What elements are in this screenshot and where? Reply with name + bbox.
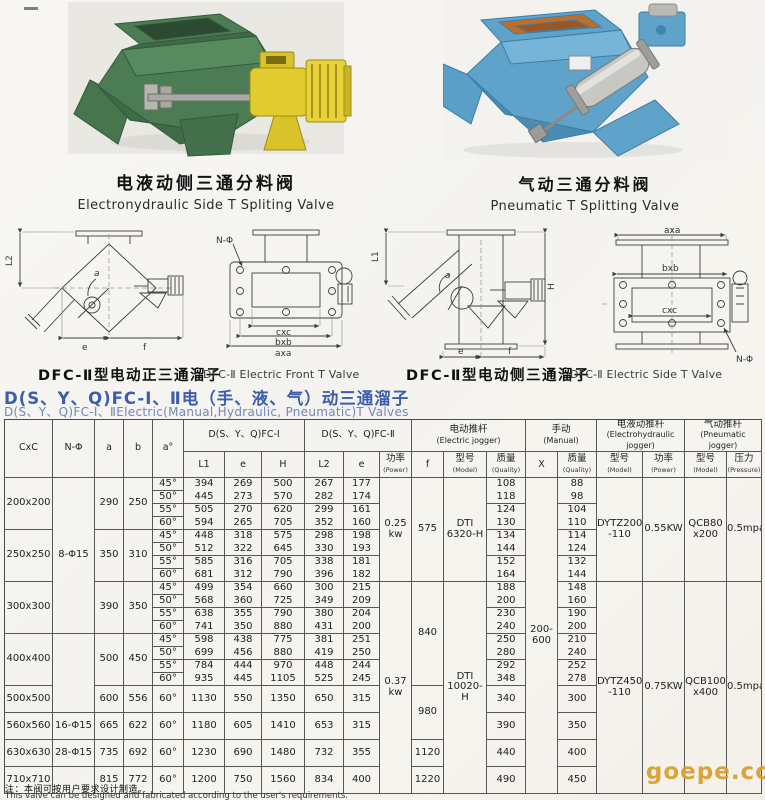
value-cell: 400 [558, 740, 597, 767]
value-cell: 665 [95, 713, 124, 740]
value-cell: 98 [558, 491, 597, 504]
value-cell: 598 [184, 634, 225, 647]
value-cell: 250 [124, 478, 153, 530]
value-cell: 400 [344, 767, 380, 794]
dim-label-f1: f [143, 343, 147, 353]
value-cell: 568 [184, 595, 225, 608]
group-manual: 手动(Manual) [526, 420, 597, 452]
value-cell: 144 [558, 569, 597, 582]
product2-caption: 气动三通分料阀 Pneumatic T Splitting Valve [443, 171, 727, 214]
value-cell: 381 [305, 634, 344, 647]
footnote-en: This valve can be designed and fabricate… [5, 791, 348, 800]
col-l1: L1 [184, 452, 225, 478]
product2-title-en: Pneumatic T Splitting Valve [443, 199, 727, 214]
product1-title-zh: 电液动侧三通分料阀 [60, 169, 352, 194]
f-cell: 1220 [412, 767, 444, 794]
dim-label-h: H [547, 283, 557, 290]
value-cell: 60° [153, 740, 184, 767]
value-cell: 690 [225, 740, 262, 767]
value-cell: 360 [225, 595, 262, 608]
value-cell: 124 [558, 543, 597, 556]
drawing2-caption-zh: DFC-Ⅱ型电动侧三通溜子 [406, 364, 590, 385]
col-a: a [95, 420, 124, 478]
value-cell: 741 [184, 621, 225, 634]
value-cell: 775 [262, 634, 305, 647]
power-cell: 0.25kw [380, 478, 412, 582]
value-cell: 438 [225, 634, 262, 647]
value-cell: 298 [305, 530, 344, 543]
dim-label-axa2: axa [664, 226, 680, 236]
value-cell: 273 [225, 491, 262, 504]
col-angle: a° [153, 420, 184, 478]
value-cell: 735 [95, 740, 124, 767]
value-cell: 300 [305, 582, 344, 595]
dim-label-axa1: axa [275, 349, 291, 359]
size-cell: 560x560 [5, 713, 53, 740]
value-cell: 880 [262, 621, 305, 634]
value-cell: 124 [487, 504, 526, 517]
value-cell: 88 [558, 478, 597, 491]
value-cell: 450 [124, 634, 153, 686]
value-cell: 445 [184, 491, 225, 504]
value-cell: 322 [225, 543, 262, 556]
value-cell: 456 [225, 647, 262, 660]
spec-table-body: 200x2008-Φ1529025045°3942695002671770.25… [5, 478, 762, 794]
f-cell: 980 [412, 686, 444, 740]
col-cxc: CxC [5, 420, 53, 478]
value-cell: 1350 [262, 686, 305, 713]
value-cell: 45° [153, 530, 184, 543]
value-cell: 350 [558, 713, 597, 740]
col-b: b [124, 420, 153, 478]
value-cell: 60° [153, 517, 184, 530]
value-cell: 114 [558, 530, 597, 543]
value-cell: 200 [487, 595, 526, 608]
value-cell: 650 [305, 686, 344, 713]
value-cell: 705 [262, 517, 305, 530]
value-cell: 300 [558, 686, 597, 713]
value-cell: 280 [487, 647, 526, 660]
value-cell: 270 [225, 504, 262, 517]
size-cell: 200x200 [5, 478, 53, 530]
value-cell: 790 [262, 608, 305, 621]
value-cell: 200 [344, 621, 380, 634]
value-cell: 316 [225, 556, 262, 569]
value-cell: 55° [153, 608, 184, 621]
value-cell: 834 [305, 767, 344, 794]
col-electric-model: 型号(Model) [444, 452, 487, 478]
col-power: 功率(Power) [380, 452, 412, 478]
eh-model-cell: DYTZ200-110 [597, 478, 643, 582]
value-cell: 448 [184, 530, 225, 543]
value-cell: 50° [153, 647, 184, 660]
value-cell: 251 [344, 634, 380, 647]
value-cell: 278 [558, 673, 597, 686]
value-cell: 160 [558, 595, 597, 608]
value-cell: 594 [184, 517, 225, 530]
product1-caption: 电液动侧三通分料阀 Electronydraulic Side T Spliti… [60, 169, 352, 213]
value-cell: 312 [225, 569, 262, 582]
value-cell: 505 [184, 504, 225, 517]
value-cell: 396 [305, 569, 344, 582]
value-cell: 240 [487, 621, 526, 634]
value-cell: 174 [344, 491, 380, 504]
size-cell: 300x300 [5, 582, 53, 634]
value-cell: 585 [184, 556, 225, 569]
value-cell: 525 [305, 673, 344, 686]
value-cell: 1410 [262, 713, 305, 740]
value-cell: 152 [487, 556, 526, 569]
photo-pneumatic-valve [443, 2, 727, 164]
value-cell: 104 [558, 504, 597, 517]
spec-table: CxCN-Φaba°D(S、Y、Q)FC-ⅠD(S、Y、Q)FC-Ⅱ电动推杆(E… [4, 419, 762, 794]
value-cell: 340 [487, 686, 526, 713]
drawing2-caption-en: DFC-Ⅱ Electric Side T Valve [570, 368, 722, 381]
value-cell: 209 [344, 595, 380, 608]
value-cell: 299 [305, 504, 344, 517]
size-cell: 630x630 [5, 740, 53, 767]
group-electric-jogger: 电动推杆(Electric jogger) [412, 420, 526, 452]
value-cell: 970 [262, 660, 305, 673]
value-cell: 705 [262, 556, 305, 569]
value-cell: 784 [184, 660, 225, 673]
drawing1-caption-en: DFC-Ⅱ Electric Front T Valve [203, 368, 360, 381]
value-cell: 60° [153, 767, 184, 794]
value-cell: 348 [487, 673, 526, 686]
watermark: goepe.co [646, 759, 765, 785]
product1-title-en: Electronydraulic Side T Spliting Valve [60, 198, 352, 213]
value-cell: 500 [262, 478, 305, 491]
value-cell: 252 [558, 660, 597, 673]
value-cell: 198 [344, 530, 380, 543]
value-cell: 1230 [184, 740, 225, 767]
f-cell: 1120 [412, 740, 444, 767]
value-cell: 190 [558, 608, 597, 621]
product-figure-electrohydraulic: 电液动侧三通分料阀 Electronydraulic Side T Spliti… [60, 2, 352, 213]
col-manual-quality: 质量(Quality) [558, 452, 597, 478]
dim-label-cxc2: cxc [662, 306, 677, 316]
value-cell: 250 [487, 634, 526, 647]
value-cell: 45° [153, 634, 184, 647]
dim-label-f2: f [508, 347, 512, 357]
value-cell: 204 [344, 608, 380, 621]
technical-drawings: L2 a e f N-Φ cxc bxb axa [0, 226, 765, 364]
drawing-side-valve [386, 230, 545, 357]
value-cell: 215 [344, 582, 380, 595]
photo-electrohydraulic-valve [60, 2, 352, 162]
dim-label-l2: L2 [5, 255, 15, 266]
value-cell: 55° [153, 504, 184, 517]
product2-title-zh: 气动三通分料阀 [443, 171, 727, 195]
value-cell: 354 [225, 582, 262, 595]
value-cell: 188 [487, 582, 526, 595]
value-cell: 1480 [262, 740, 305, 767]
value-cell: 318 [225, 530, 262, 543]
value-cell: 725 [262, 595, 305, 608]
product-figure-pneumatic: 气动三通分料阀 Pneumatic T Splitting Valve [443, 2, 727, 214]
eh-power-cell: 0.55KW [643, 478, 685, 582]
value-cell: 380 [305, 608, 344, 621]
scan-artifact [24, 7, 38, 10]
value-cell: 1105 [262, 673, 305, 686]
drawing1-caption-zh: DFC-Ⅱ型电动正三通溜子 [38, 364, 222, 385]
value-cell: 245 [344, 673, 380, 686]
value-cell: 134 [487, 530, 526, 543]
value-cell: 45° [153, 582, 184, 595]
value-cell: 338 [305, 556, 344, 569]
value-cell: 699 [184, 647, 225, 660]
value-cell: 444 [225, 660, 262, 673]
size-cell: 400x400 [5, 634, 53, 686]
value-cell: 182 [344, 569, 380, 582]
value-cell: 622 [124, 713, 153, 740]
value-cell: 350 [225, 621, 262, 634]
col-l2: L2 [305, 452, 344, 478]
value-cell: 55° [153, 556, 184, 569]
value-cell: 160 [344, 517, 380, 530]
value-cell: 653 [305, 713, 344, 740]
value-cell: 390 [487, 713, 526, 740]
value-cell: 419 [305, 647, 344, 660]
eh-model-cell: DYTZ450-110 [597, 582, 643, 794]
value-cell: 50° [153, 595, 184, 608]
value-cell: 1560 [262, 767, 305, 794]
value-cell: 431 [305, 621, 344, 634]
dim-label-cxc1: cxc [276, 328, 291, 338]
value-cell: 500 [95, 634, 124, 686]
col-f: f [412, 452, 444, 478]
value-cell: 660 [262, 582, 305, 595]
value-cell: 681 [184, 569, 225, 582]
value-cell: 600 [95, 686, 124, 713]
value-cell: 638 [184, 608, 225, 621]
power-cell: 0.37kw [380, 582, 412, 794]
value-cell: 310 [124, 530, 153, 582]
value-cell: 110 [558, 517, 597, 530]
value-cell: 570 [262, 491, 305, 504]
value-cell: 1180 [184, 713, 225, 740]
value-cell: 60° [153, 713, 184, 740]
value-cell: 164 [487, 569, 526, 582]
col-eh-power: 功率(Power) [643, 452, 685, 478]
dim-label-nphi2: N-Φ [736, 355, 753, 364]
value-cell: 315 [344, 713, 380, 740]
value-cell: 448 [305, 660, 344, 673]
value-cell: 645 [262, 543, 305, 556]
value-cell: 60° [153, 621, 184, 634]
value-cell: 267 [305, 478, 344, 491]
nphi-cell: 16-Φ15 [53, 713, 95, 740]
value-cell: 244 [344, 660, 380, 673]
value-cell: 692 [124, 740, 153, 767]
electric-model-cell: DTⅠ6320-H [444, 478, 487, 582]
value-cell: 394 [184, 478, 225, 491]
col-e2: e [344, 452, 380, 478]
value-cell: 350 [95, 530, 124, 582]
value-cell: 750 [225, 767, 262, 794]
value-cell: 550 [225, 686, 262, 713]
value-cell: 790 [262, 569, 305, 582]
drawing-side-valve-face [602, 228, 748, 354]
value-cell: 50° [153, 491, 184, 504]
value-cell: 193 [344, 543, 380, 556]
value-cell: 390 [95, 582, 124, 634]
value-cell: 60° [153, 686, 184, 713]
col-e1: e [225, 452, 262, 478]
pneu-model-cell: QCB80x200 [685, 478, 727, 582]
value-cell: 575 [262, 530, 305, 543]
value-cell: 200 [558, 621, 597, 634]
value-cell: 50° [153, 543, 184, 556]
dim-label-e2: e [458, 347, 464, 357]
value-cell: 1130 [184, 686, 225, 713]
value-cell: 352 [305, 517, 344, 530]
value-cell: 330 [305, 543, 344, 556]
value-cell: 130 [487, 517, 526, 530]
value-cell: 269 [225, 478, 262, 491]
group-pneumatic-jogger: 气动推杆(Pneumatic jogger) [685, 420, 762, 452]
group-fc1: D(S、Y、Q)FC-Ⅰ [184, 420, 305, 452]
dim-label-a1: a [94, 269, 100, 279]
nphi-cell [53, 634, 95, 713]
value-cell: 45° [153, 478, 184, 491]
value-cell: 132 [558, 556, 597, 569]
value-cell: 620 [262, 504, 305, 517]
spec-table-head: CxCN-Φaba°D(S、Y、Q)FC-ⅠD(S、Y、Q)FC-Ⅱ电动推杆(E… [5, 420, 762, 478]
value-cell: 490 [487, 767, 526, 794]
value-cell: 512 [184, 543, 225, 556]
catalog-page: 电液动侧三通分料阀 Electronydraulic Side T Spliti… [0, 0, 765, 800]
value-cell: 499 [184, 582, 225, 595]
value-cell: 605 [225, 713, 262, 740]
group-electrohydraulic-jogger: 电液动推杆(Electrohydraulic jogger) [597, 420, 685, 452]
electric-model-cell: DTⅠ10020-H [444, 582, 487, 794]
value-cell: 880 [262, 647, 305, 660]
dim-label-bxb1: bxb [275, 338, 292, 348]
col-electric-quality: 质量(Quality) [487, 452, 526, 478]
value-cell: 161 [344, 504, 380, 517]
f-cell: 575 [412, 478, 444, 582]
value-cell: 1200 [184, 767, 225, 794]
nphi-cell: 8-Φ15 [53, 478, 95, 634]
value-cell: 55° [153, 660, 184, 673]
pneu-pressure-cell: 0.5mpa [727, 478, 762, 582]
series-heading-en: D(S、Y、Q)FC-Ⅰ、ⅡElectric(Manual,Hydraulic,… [4, 403, 409, 420]
value-cell: 355 [225, 608, 262, 621]
size-cell: 250x250 [5, 530, 53, 582]
value-cell: 265 [225, 517, 262, 530]
col-eh-model: 型号(Model) [597, 452, 643, 478]
value-cell: 935 [184, 673, 225, 686]
col-h: H [262, 452, 305, 478]
value-cell: 355 [344, 740, 380, 767]
x-cell: 200-600 [526, 478, 558, 794]
col-pneu-model: 型号(Model) [685, 452, 727, 478]
value-cell: 60° [153, 673, 184, 686]
value-cell: 148 [558, 582, 597, 595]
drawing-front-valve [20, 231, 183, 338]
value-cell: 350 [124, 582, 153, 634]
f-cell: 840 [412, 582, 444, 686]
value-cell: 450 [558, 767, 597, 794]
value-cell: 440 [487, 740, 526, 767]
value-cell: 732 [305, 740, 344, 767]
value-cell: 108 [487, 478, 526, 491]
value-cell: 250 [344, 647, 380, 660]
value-cell: 60° [153, 569, 184, 582]
value-cell: 177 [344, 478, 380, 491]
value-cell: 181 [344, 556, 380, 569]
nphi-cell: 28-Φ15 [53, 740, 95, 767]
col-pneu-pressure: 压力(Pressure) [727, 452, 762, 478]
value-cell: 230 [487, 608, 526, 621]
dim-label-bxb2: bxb [662, 264, 679, 274]
dim-label-e1: e [82, 343, 88, 353]
value-cell: 144 [487, 543, 526, 556]
col-nphi: N-Φ [53, 420, 95, 478]
value-cell: 349 [305, 595, 344, 608]
dim-label-l1: L1 [371, 251, 381, 262]
dim-label-a2: a [445, 271, 451, 281]
group-fc2: D(S、Y、Q)FC-Ⅱ [305, 420, 412, 452]
value-cell: 556 [124, 686, 153, 713]
value-cell: 118 [487, 491, 526, 504]
value-cell: 445 [225, 673, 262, 686]
size-cell: 500x500 [5, 686, 53, 713]
value-cell: 290 [95, 478, 124, 530]
value-cell: 315 [344, 686, 380, 713]
col-x: X [526, 452, 558, 478]
value-cell: 282 [305, 491, 344, 504]
value-cell: 210 [558, 634, 597, 647]
value-cell: 292 [487, 660, 526, 673]
dim-label-nphi1: N-Φ [216, 236, 233, 246]
value-cell: 240 [558, 647, 597, 660]
